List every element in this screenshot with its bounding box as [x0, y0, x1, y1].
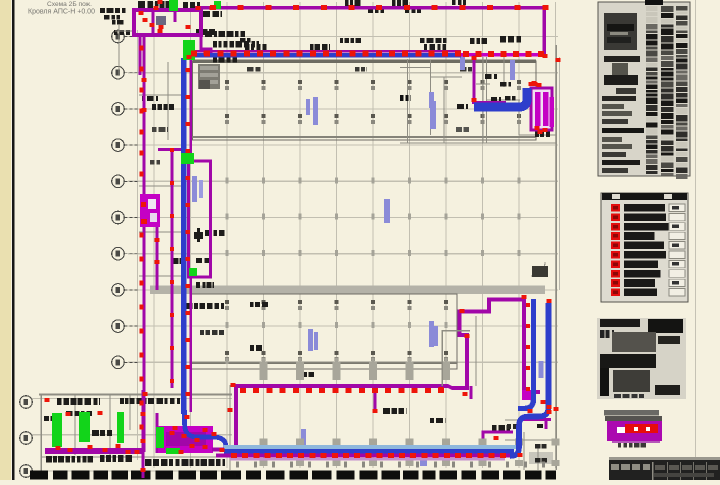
svg-text:Кровля АПС-Н +0.00: Кровля АПС-Н +0.00: [28, 9, 95, 16]
svg-text:Схема 2Б пож.: Схема 2Б пож.: [47, 1, 92, 8]
